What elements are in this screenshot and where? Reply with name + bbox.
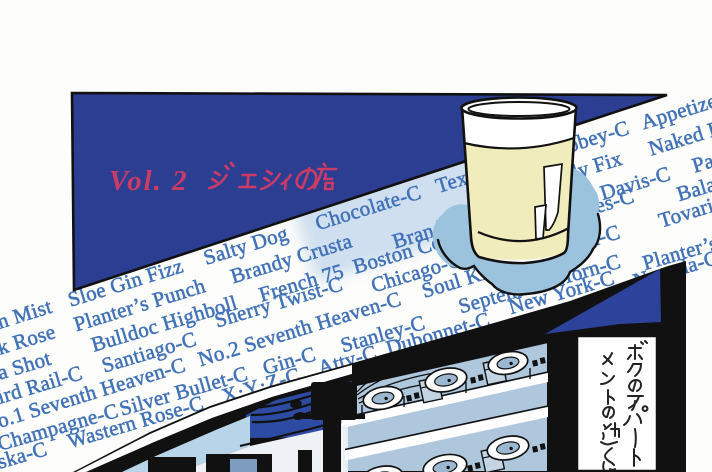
svg-text:Vol. 2: Vol. 2: [109, 165, 189, 197]
